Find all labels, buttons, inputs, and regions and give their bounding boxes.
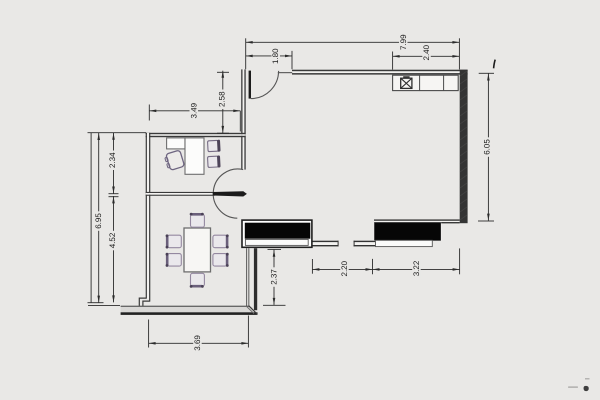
svg-text:2.58: 2.58	[217, 91, 226, 107]
svg-text:6.05: 6.05	[483, 139, 492, 155]
svg-text:2.40: 2.40	[422, 44, 431, 60]
svg-text:3.69: 3.69	[193, 335, 202, 351]
svg-text:1.80: 1.80	[271, 48, 280, 64]
svg-text:2.37: 2.37	[269, 269, 278, 285]
svg-text:4.52: 4.52	[108, 232, 117, 248]
svg-text:3.49: 3.49	[189, 102, 198, 118]
svg-text:2.20: 2.20	[340, 260, 349, 276]
svg-text:6.95: 6.95	[94, 213, 103, 229]
svg-text:3.22: 3.22	[412, 260, 421, 276]
svg-text:7.99: 7.99	[399, 34, 408, 50]
svg-text:2.34: 2.34	[108, 152, 117, 168]
